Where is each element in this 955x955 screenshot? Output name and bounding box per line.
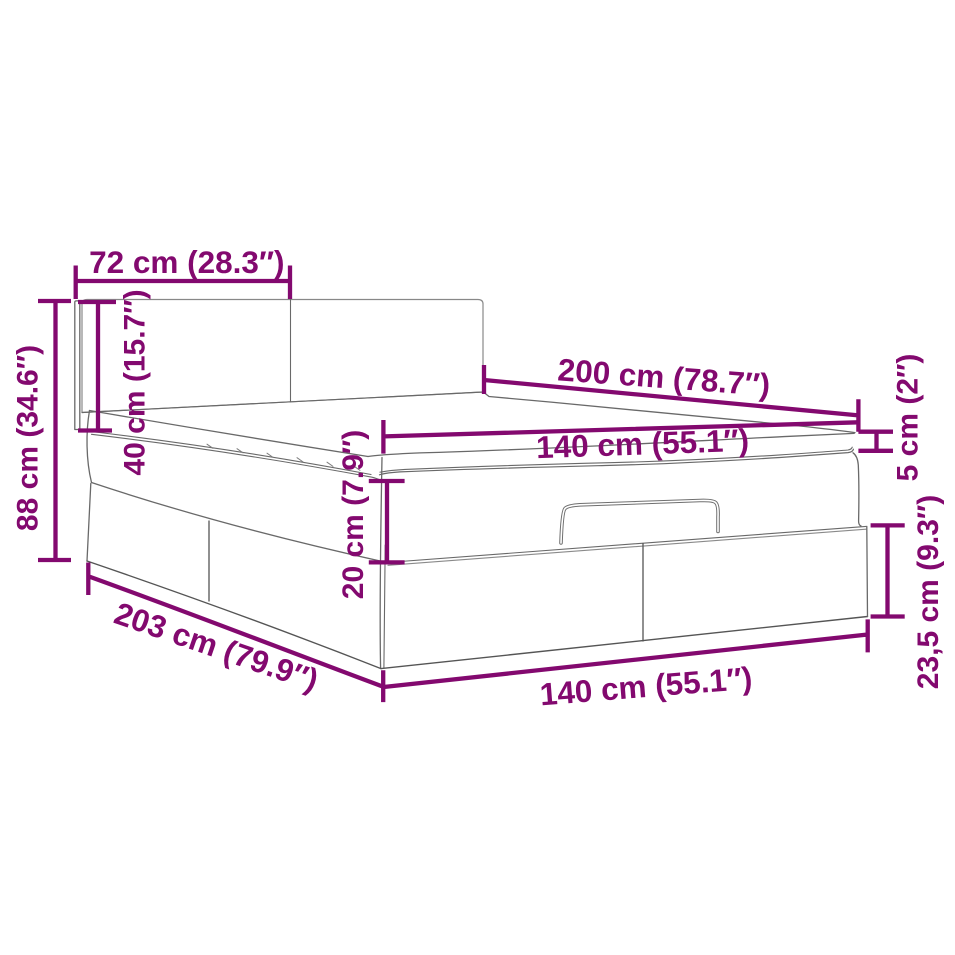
svg-text:88 cm (34.6″): 88 cm (34.6″) — [12, 345, 45, 531]
svg-text:72 cm (28.3″): 72 cm (28.3″) — [89, 244, 284, 280]
svg-text:40 cm (15.7″): 40 cm (15.7″) — [119, 289, 152, 475]
svg-text:23,5 cm (9.3″): 23,5 cm (9.3″) — [912, 495, 945, 689]
svg-text:5 cm (2″): 5 cm (2″) — [892, 354, 925, 482]
svg-text:20 cm (7.9″): 20 cm (7.9″) — [337, 430, 370, 599]
svg-text:140 cm (55.1″): 140 cm (55.1″) — [535, 422, 749, 465]
